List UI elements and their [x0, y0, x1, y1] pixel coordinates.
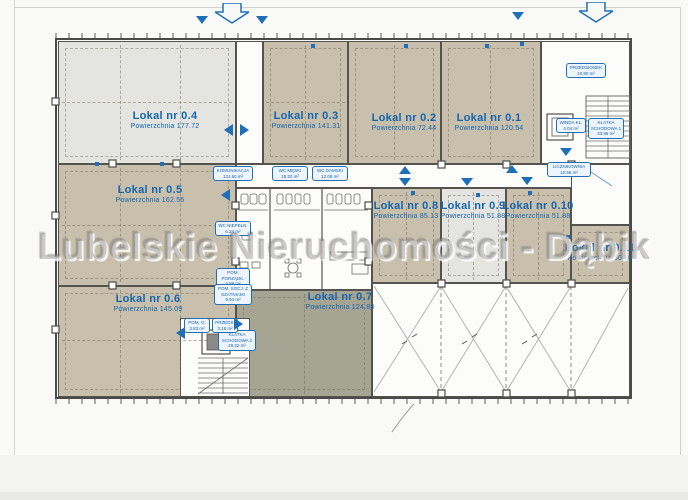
- door-arrow-icon: [506, 165, 518, 173]
- room-lokal-0-1: [441, 41, 541, 164]
- axis-line: [62, 225, 232, 226]
- entrance-arrow-icon: [579, 2, 613, 23]
- door-arrow-icon: [461, 178, 473, 186]
- door-marker: [528, 191, 532, 195]
- floor-plan-scan: Lokal nr 0.4 Powierzchnia 177.72 Lokal n…: [0, 0, 688, 500]
- axis-line: [538, 192, 539, 280]
- stair-wing: [541, 41, 630, 164]
- garage-hall: [372, 283, 630, 397]
- door-marker: [476, 193, 480, 197]
- room-licznikownia: [571, 164, 630, 225]
- door-arrow-icon: [560, 148, 572, 156]
- corridor-vertical: [236, 41, 263, 164]
- door-arrow-icon: [512, 12, 524, 20]
- door-marker: [566, 235, 570, 239]
- door-arrow-icon: [521, 177, 533, 185]
- door-marker: [160, 162, 164, 166]
- axis-line: [394, 45, 395, 160]
- door-marker: [520, 42, 524, 46]
- door-arrow-icon: [399, 178, 411, 186]
- door-arrow-icon: [224, 124, 233, 136]
- axis-line: [180, 290, 181, 393]
- top-wall-hatch: [55, 33, 632, 38]
- door-arrow-icon: [176, 327, 185, 339]
- axis-line: [62, 102, 232, 103]
- axis-line: [490, 45, 491, 160]
- door-arrow-icon: [196, 16, 208, 24]
- door-arrow-icon: [256, 16, 268, 24]
- axis-line: [473, 192, 474, 280]
- axis-line: [120, 290, 121, 393]
- axis-line: [406, 192, 407, 280]
- door-marker: [404, 44, 408, 48]
- door-arrow-icon: [399, 166, 411, 174]
- bottom-wall-hatch: [55, 399, 632, 404]
- door-marker: [411, 191, 415, 195]
- door-marker: [311, 44, 315, 48]
- entrance-arrow-icon: [215, 3, 249, 24]
- door-arrow-icon: [221, 189, 230, 201]
- sanitary-block: [236, 188, 372, 290]
- frame-right-line: [680, 7, 681, 457]
- door-marker: [95, 162, 99, 166]
- page-fold-line: [14, 0, 15, 500]
- axis-line: [304, 294, 305, 394]
- axis-line: [266, 102, 345, 103]
- door-marker: [485, 44, 489, 48]
- scan-band-dark: [0, 492, 688, 500]
- door-arrow-icon: [240, 124, 249, 136]
- axis-line: [62, 340, 232, 341]
- door-arrow-icon: [234, 318, 243, 330]
- room-lokal-0-11: [571, 225, 630, 283]
